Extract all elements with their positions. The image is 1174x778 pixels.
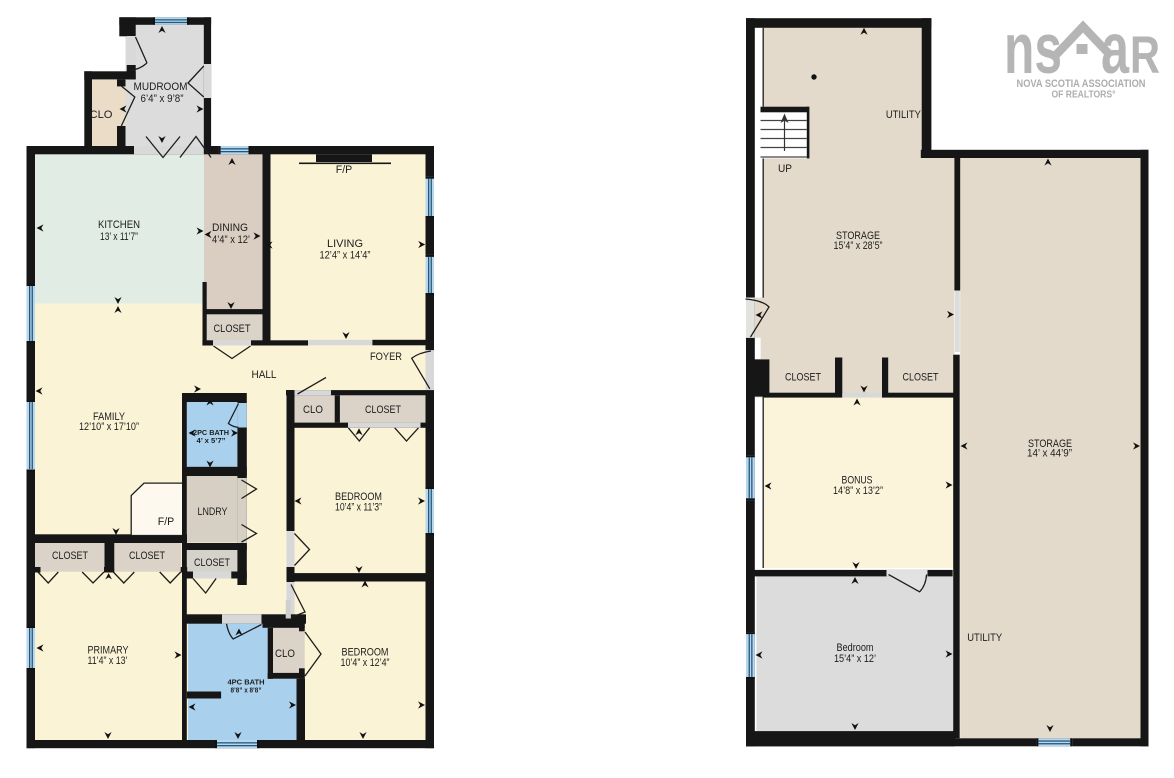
svg-text:11’4” x 13’: 11’4” x 13’ — [88, 655, 128, 667]
svg-text:10’4” x 12’4”: 10’4” x 12’4” — [341, 657, 390, 669]
svg-text:6’4” x 9’8”: 6’4” x 9’8” — [141, 93, 184, 105]
svg-text:CLOSET: CLOSET — [785, 372, 821, 384]
svg-text:LIVING: LIVING — [327, 238, 363, 250]
svg-text:8’8” x 8’8”: 8’8” x 8’8” — [231, 686, 262, 695]
svg-text:OF REALTORS°: OF REALTORS° — [1052, 90, 1116, 101]
svg-text:12’10” x 17’10”: 12’10” x 17’10” — [79, 421, 139, 433]
svg-text:ns: ns — [1004, 9, 1062, 89]
svg-text:10’4” x 11’3”: 10’4” x 11’3” — [335, 502, 382, 514]
svg-text:CLOSET: CLOSET — [903, 372, 939, 384]
svg-text:CLOSET: CLOSET — [194, 557, 230, 569]
svg-text:DINING: DINING — [212, 222, 248, 234]
svg-text:12’4” x 14’4”: 12’4” x 14’4” — [320, 250, 371, 262]
svg-text:CLOSET: CLOSET — [129, 550, 165, 562]
svg-text:FOYER: FOYER — [370, 351, 402, 363]
svg-text:F/P: F/P — [158, 516, 174, 528]
svg-text:UTILITY: UTILITY — [886, 109, 922, 121]
svg-text:CLOSET: CLOSET — [52, 550, 88, 562]
svg-text:4’4” x 12’: 4’4” x 12’ — [212, 234, 250, 246]
svg-text:NOVA SCOTIA ASSOCIATION: NOVA SCOTIA ASSOCIATION — [1017, 78, 1146, 90]
svg-text:4’ x 5’7”: 4’ x 5’7” — [197, 436, 226, 445]
svg-text:F/P: F/P — [336, 164, 352, 176]
svg-text:15’4” x 12’: 15’4” x 12’ — [834, 653, 876, 665]
svg-text:MUDROOM: MUDROOM — [134, 81, 188, 93]
svg-text:LNDRY: LNDRY — [198, 506, 229, 518]
svg-text:14’ x 44’9”: 14’ x 44’9” — [1027, 448, 1072, 460]
svg-text:CLOSET: CLOSET — [365, 404, 401, 416]
svg-text:CLO: CLO — [275, 648, 295, 660]
svg-text:UP: UP — [778, 163, 792, 175]
svg-text:UTILITY: UTILITY — [967, 632, 1003, 644]
svg-text:R: R — [1130, 26, 1160, 85]
svg-text:14’8” x 13’2”: 14’8” x 13’2” — [833, 485, 883, 497]
svg-text:CLO: CLO — [90, 109, 113, 121]
svg-text:CLOSET: CLOSET — [214, 323, 251, 335]
svg-text:HALL: HALL — [252, 369, 277, 381]
svg-text:13’ x 11’7”: 13’ x 11’7” — [100, 231, 138, 243]
svg-text:CLO: CLO — [303, 404, 323, 416]
svg-text:15’4” x 28’5”: 15’4” x 28’5” — [834, 240, 883, 252]
svg-text:KITCHEN: KITCHEN — [98, 219, 140, 231]
